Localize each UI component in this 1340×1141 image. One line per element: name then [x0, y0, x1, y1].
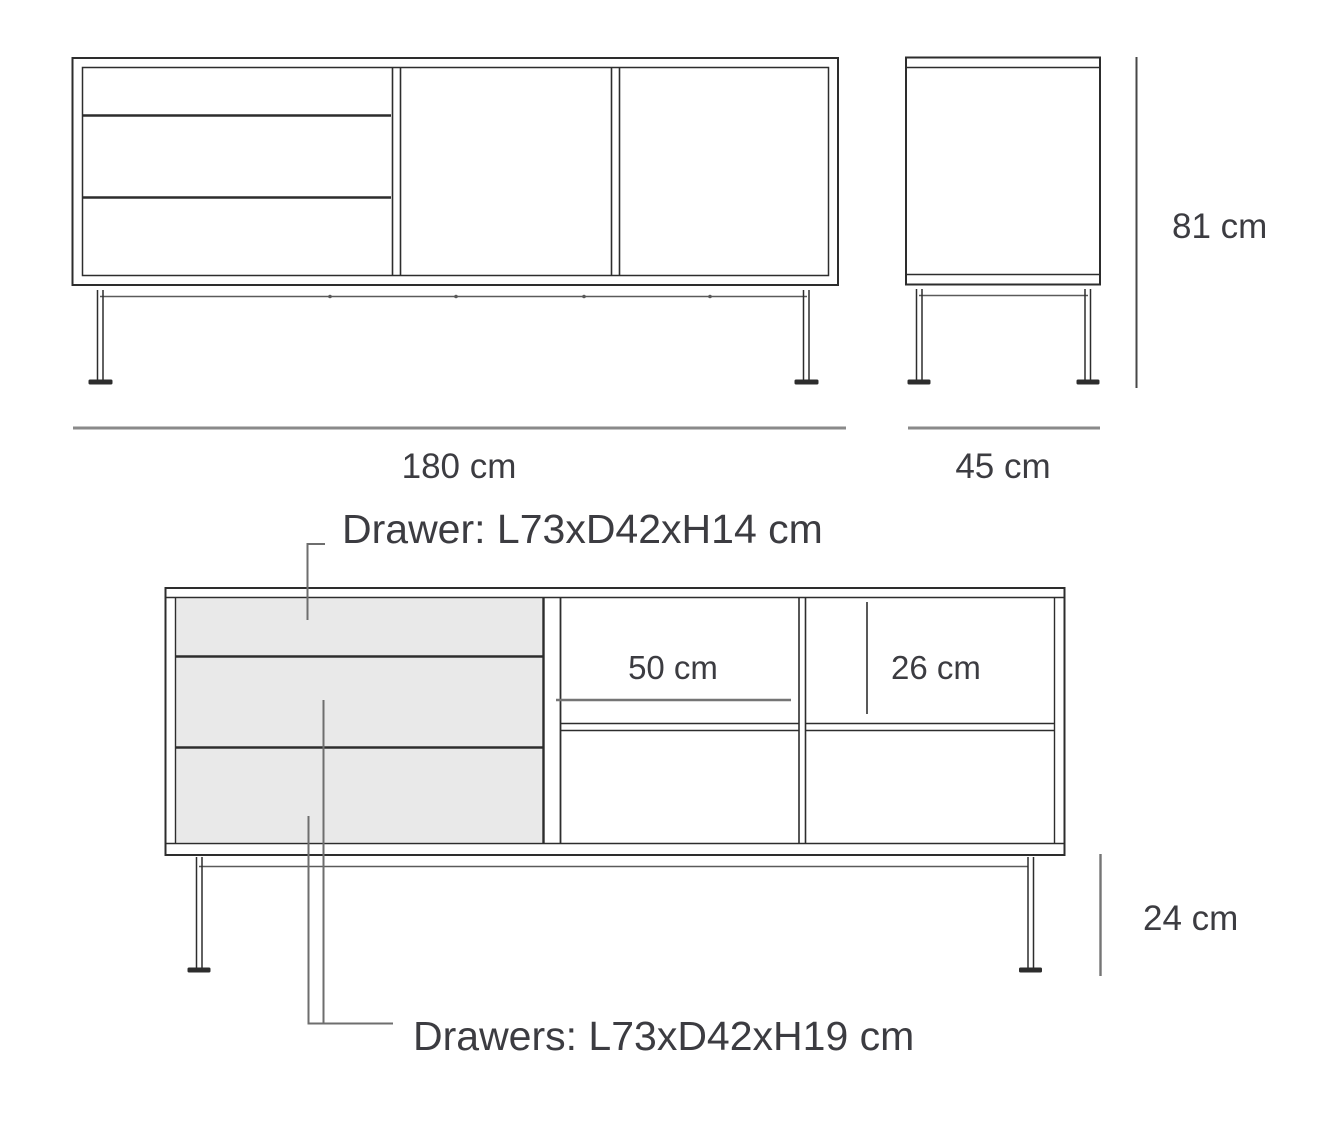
- detail-drawer-2: [176, 658, 543, 747]
- leg-foot: [908, 380, 931, 385]
- compartment-height-label: 26 cm: [891, 649, 981, 686]
- front-left-leg: [89, 290, 113, 385]
- compartment-width-dimension: 50 cm: [556, 649, 791, 700]
- detail-center-wall-right: [799, 598, 806, 843]
- side-height-dimension: 81 cm: [1137, 57, 1268, 388]
- detail-right-leg: [1019, 857, 1042, 973]
- front-divider-drawers-door1: [393, 68, 401, 275]
- front-width-dimension: 180 cm: [73, 428, 846, 486]
- side-right-leg: [1077, 289, 1100, 385]
- front-right-leg: [795, 290, 819, 385]
- leg-foot: [795, 380, 819, 385]
- right-compartment-shelf: [806, 724, 1054, 731]
- side-depth-label: 45 cm: [955, 447, 1050, 486]
- diagram-canvas: 180 cm 45 cm 81 cm: [0, 0, 1340, 1141]
- front-body-outline: [73, 58, 839, 285]
- side-depth-dimension: 45 cm: [908, 428, 1100, 486]
- side-body-outline: [906, 58, 1100, 285]
- leg-foot: [1077, 380, 1100, 385]
- sideboard-dimension-diagram: 180 cm 45 cm 81 cm: [0, 0, 1340, 1141]
- compartment-width-label: 50 cm: [628, 649, 718, 686]
- rail-mark: [454, 295, 458, 299]
- front-divider-door1-door2: [612, 68, 620, 275]
- front-body-inner-frame: [83, 68, 829, 276]
- side-view: [906, 58, 1100, 385]
- leg-foot: [1019, 968, 1042, 973]
- leg-height-dimension: 24 cm: [1101, 854, 1239, 976]
- side-left-leg: [908, 289, 931, 385]
- rail-mark: [582, 295, 586, 299]
- front-width-label: 180 cm: [402, 447, 517, 486]
- compartment-height-dimension: 26 cm: [867, 602, 981, 714]
- detail-drawer-3: [176, 749, 543, 843]
- middle-compartment-shelf: [561, 724, 799, 731]
- top-drawer-callout-label: Drawer: L73xD42xH14 cm: [342, 506, 823, 552]
- leg-foot: [188, 968, 211, 973]
- leg-foot: [89, 380, 113, 385]
- leg-height-label: 24 cm: [1143, 899, 1238, 938]
- bottom-drawers-callout-label: Drawers: L73xD42xH19 cm: [413, 1013, 914, 1059]
- side-height-label: 81 cm: [1172, 207, 1267, 246]
- rail-mark: [328, 295, 332, 299]
- detail-left-leg: [188, 857, 211, 973]
- detail-drawer-1: [176, 599, 543, 656]
- front-view: [73, 58, 839, 385]
- detail-view: [166, 588, 1065, 973]
- drawer3-leader-line: [309, 816, 394, 1024]
- rail-mark: [708, 295, 712, 299]
